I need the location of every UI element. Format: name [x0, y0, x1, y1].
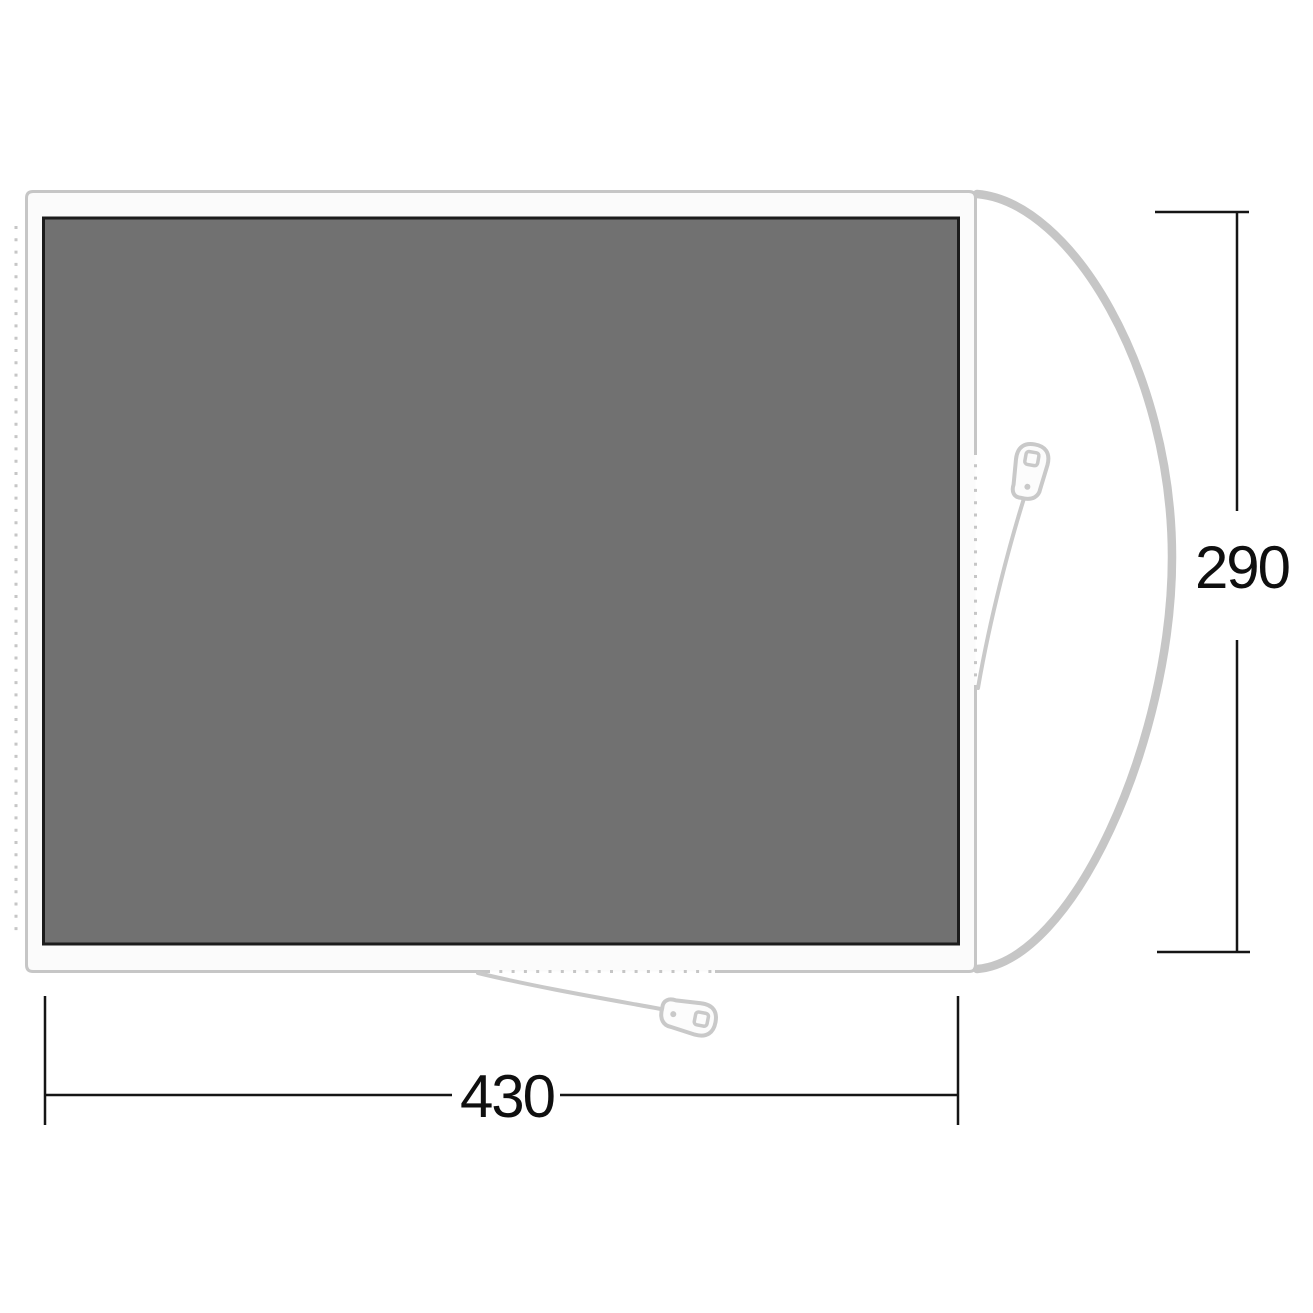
- porch-outline-curve: [977, 194, 1172, 969]
- width-dimension-label: 430: [460, 1063, 555, 1130]
- zipper-pull-icon: [658, 996, 718, 1038]
- right-zip-cord: [978, 492, 1026, 688]
- groundsheet-panel: [44, 218, 959, 944]
- bottom-zip-cord: [478, 973, 661, 1009]
- footprint-diagram: 430 290: [0, 0, 1313, 1313]
- footprint-diagram-canvas: 430 290: [0, 0, 1313, 1313]
- height-dimension-label: 290: [1195, 534, 1290, 601]
- zipper-pull-icon: [1009, 442, 1050, 502]
